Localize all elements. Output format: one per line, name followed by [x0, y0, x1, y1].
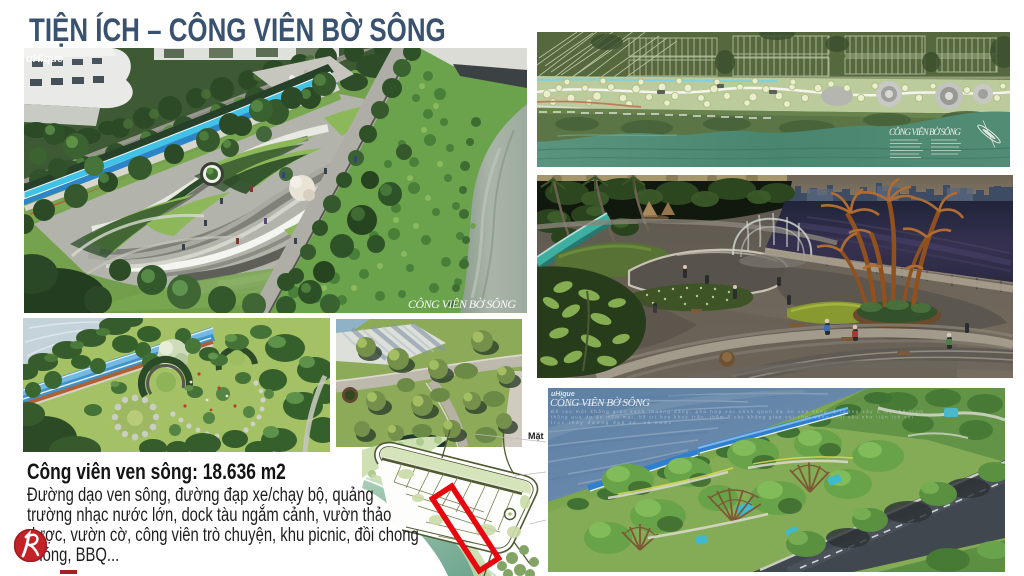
- svg-text:CÔNG VIÊN BỜ SÔNG: CÔNG VIÊN BỜ SÔNG: [889, 127, 962, 137]
- svg-text:uHique: uHique: [26, 53, 63, 65]
- svg-text:CÔNG VIÊN BỜ SÔNG: CÔNG VIÊN BỜ SÔNG: [550, 397, 650, 409]
- svg-text:Để tạo một không gian xanh tho: Để tạo một không gian xanh thoáng đãng, …: [551, 409, 923, 414]
- svg-text:CÔNG VIÊN BỜ SÔNG: CÔNG VIÊN BỜ SÔNG: [408, 297, 516, 311]
